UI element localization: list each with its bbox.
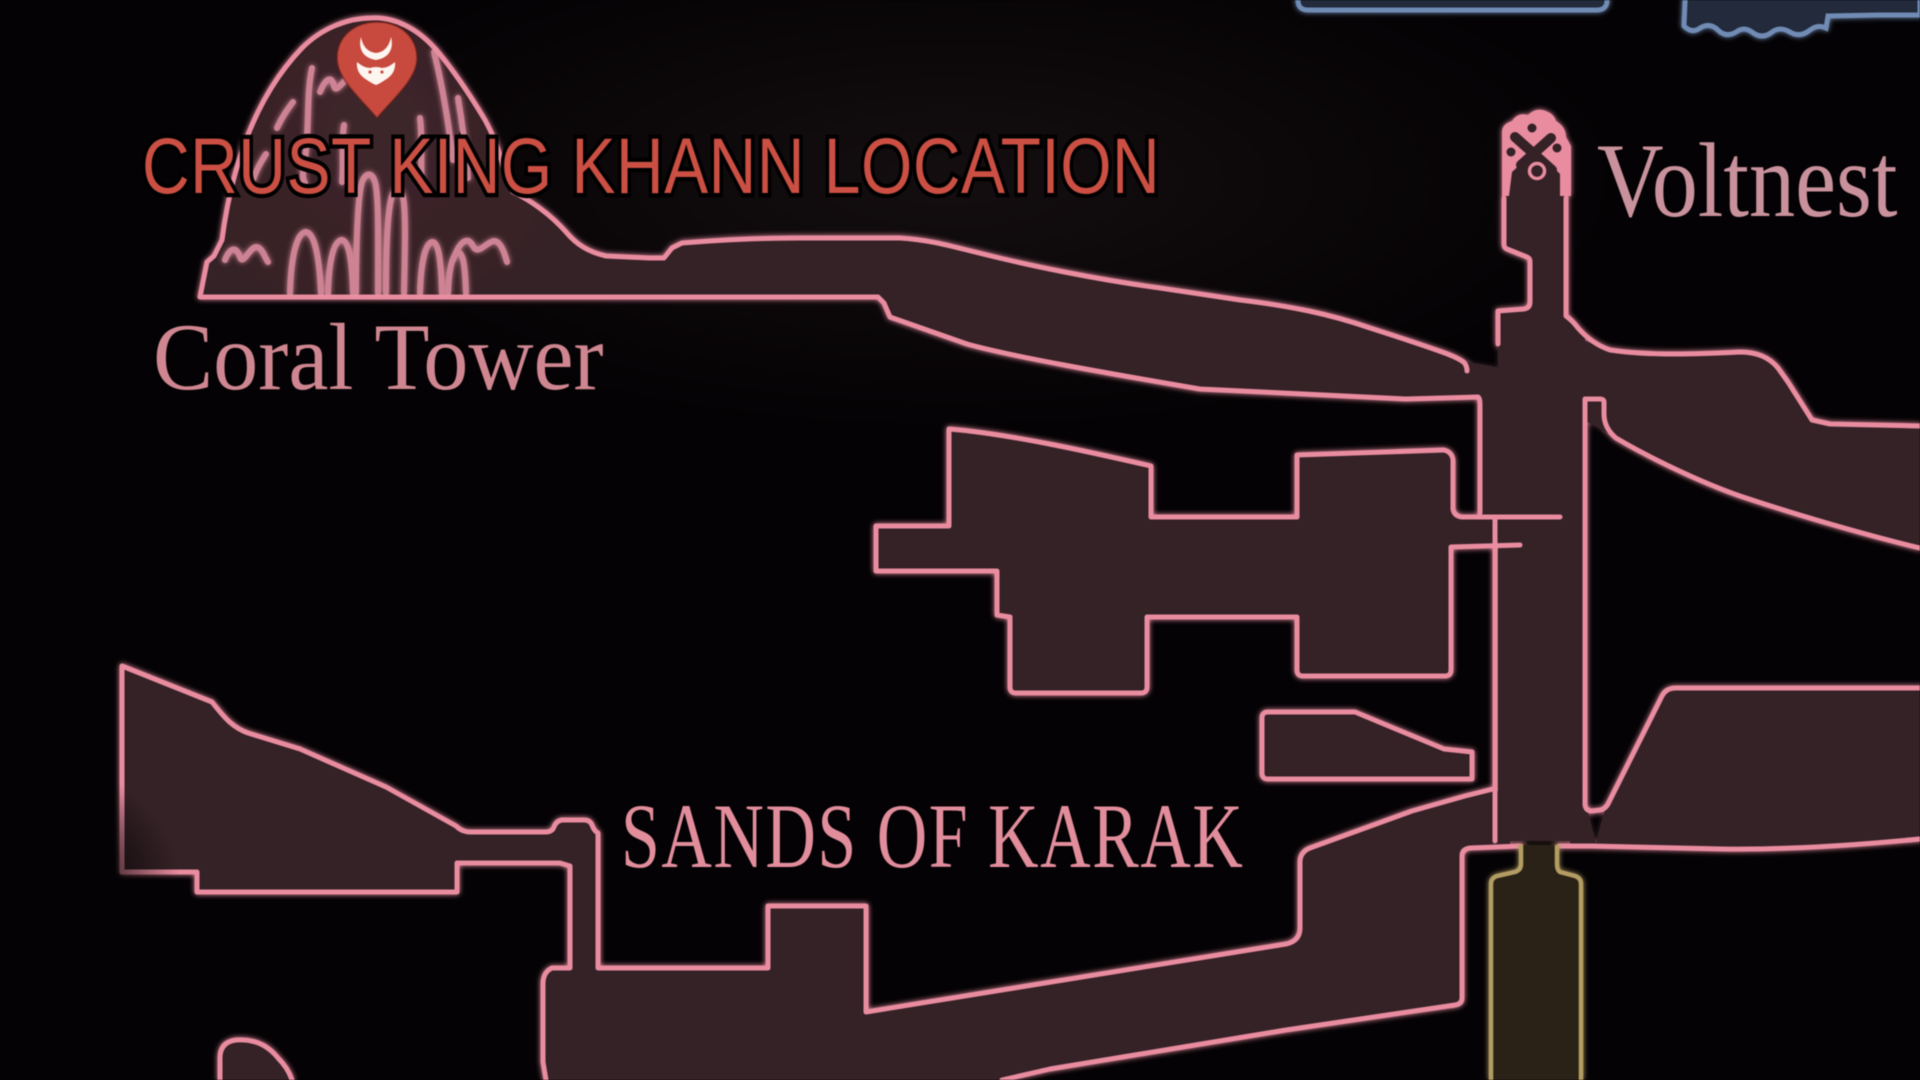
- svg-text:SANDS OF KARAK: SANDS OF KARAK: [621, 785, 1244, 887]
- svg-text:Voltnest: Voltnest: [1597, 122, 1898, 239]
- svg-text:CRUST KING KHANN LOCATION: CRUST KING KHANN LOCATION: [142, 122, 1160, 210]
- svg-text:Coral Tower: Coral Tower: [153, 305, 604, 411]
